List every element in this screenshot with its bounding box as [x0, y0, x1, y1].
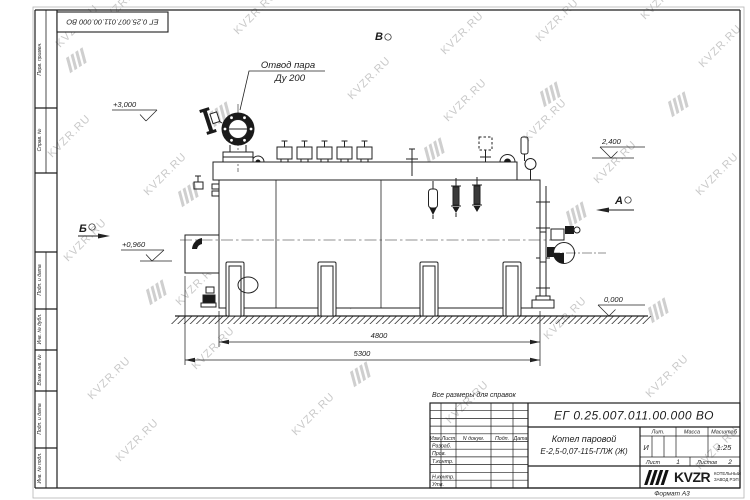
steam-outlet-callout: Отвод пара Ду 200: [240, 60, 325, 110]
view-label: А: [614, 195, 623, 207]
row-label-utv: Утв.: [432, 482, 444, 488]
callout-line2: Ду 200: [274, 73, 306, 84]
watermark-text: KVZR.RU: [644, 353, 692, 401]
view-rotation-icon: [625, 197, 631, 203]
view-marker-v: В: [375, 31, 391, 43]
product-name-line2: Е-2,5-0,07-115-ГЛЖ (Ж): [540, 447, 628, 456]
view-label: Б: [79, 223, 87, 235]
view-label: В: [375, 31, 383, 43]
company-logo-text: KVZR: [674, 469, 711, 485]
product-name-line1: Котел паровой: [552, 434, 617, 444]
frame-cell-label: Инв. № подл.: [37, 452, 43, 483]
view-arrow-icon: [596, 208, 609, 213]
watermark-text: KVZR.RU: [439, 10, 487, 58]
sheets-label: Листов: [696, 460, 717, 466]
row-label-nkontr: Н.контр.: [432, 474, 454, 480]
safety-dome: [252, 155, 515, 163]
callout-line1: Отвод пара: [261, 60, 315, 71]
elevation-label: 0,000: [604, 295, 624, 304]
elevation-left-mid: +0,960: [121, 240, 172, 261]
frame-cell-label: Взам. инв. №: [37, 354, 43, 386]
frame-cell-label: Подп. и дата: [37, 403, 43, 435]
format-note: Формат А3: [654, 491, 690, 498]
row-label-prov: Пров.: [432, 451, 446, 457]
title-block: ЕГ 0.25.007.011.00.000 ВО Котел паровой …: [430, 403, 741, 488]
watermark-text: KVZR.RU: [442, 77, 490, 125]
sheets-value: 2: [727, 459, 732, 466]
elevation-label: +0,960: [122, 240, 146, 249]
pressure-gauge: [521, 137, 536, 180]
company-name-line2: ЗАВОД РЭП: [714, 477, 739, 482]
drawing-canvas: KVZR.RU KVZR.RU KVZR.RU KVZR.RU KVZR.RU …: [0, 0, 750, 500]
watermark-text: KVZR.RU: [694, 151, 742, 199]
watermark-text: KVZR.RU: [142, 151, 190, 199]
sheet-value: 1: [676, 459, 680, 466]
sheet-label: Лист: [645, 460, 661, 466]
ground-line: [175, 316, 648, 320]
col-header-ndoc: N докум.: [463, 436, 484, 442]
watermark-text: KVZR.RU: [86, 355, 134, 403]
reference-note: Все размеры для справок: [432, 391, 517, 399]
dimension-4800: 4800: [219, 311, 540, 366]
lit-label: Лит.: [651, 430, 665, 436]
watermark-text: KVZR.RU: [232, 0, 280, 37]
elevation-valve-top: +3,000: [112, 100, 157, 121]
watermark-text: KVZR.RU: [697, 23, 745, 71]
watermark-text: KVZR.RU: [290, 391, 338, 439]
watermark-text: KVZR.RU: [46, 113, 94, 161]
dimension-label: 5300: [354, 349, 372, 358]
valve-handwheel: [199, 105, 222, 135]
view-rotation-icon: [385, 34, 391, 40]
frame-cell-label: Справ. №: [37, 128, 43, 151]
col-header-izm: Изм.: [430, 436, 441, 442]
company-logo-icon: [644, 470, 669, 485]
watermark-text: KVZR.RU: [444, 379, 492, 427]
title-block-right-labels: Лит. Масса Масштаб И 1:25 Лист 1 Листов …: [643, 430, 737, 466]
top-stamp-doc-number: ЕГ 0.25.007.011.00.000 ВО: [66, 18, 158, 27]
company-name-line1: КОТЕЛЬНЫЙ: [714, 471, 741, 476]
watermark-text: KVZR.RU: [346, 55, 394, 103]
elevation-ground: 0,000: [598, 295, 645, 316]
lit-value: И: [643, 443, 649, 452]
mass-label: Масса: [684, 430, 700, 436]
doc-number: ЕГ 0.25.007.011.00.000 ВО: [554, 409, 714, 423]
company-logo: KVZR КОТЕЛЬНЫЙ ЗАВОД РЭП: [644, 469, 741, 485]
frame-cell-label: Инв. № дубл.: [37, 314, 43, 345]
scale-label: Масштаб: [711, 430, 738, 436]
drawing-sheet: KVZR.RU KVZR.RU KVZR.RU KVZR.RU KVZR.RU …: [0, 0, 750, 500]
frame-cell-label: Перв. примен.: [37, 42, 43, 75]
watermark-text: KVZR.RU: [190, 325, 238, 373]
view-marker-a: А: [596, 195, 634, 213]
watermark-text: KVZR.RU: [114, 417, 162, 465]
elevation-label: 2,400: [601, 137, 622, 146]
scale-value: 1:25: [717, 443, 732, 452]
frame-cell-label: Подп. и дата: [37, 264, 43, 296]
row-label-razrab: Разраб.: [432, 444, 451, 450]
col-header-data: Дата: [513, 436, 528, 442]
col-header-podp: Подп.: [495, 436, 509, 442]
watermark-text: KVZR.RU: [639, 0, 687, 22]
top-stamp: ЕГ 0.25.007.011.00.000 ВО: [57, 12, 168, 32]
hatch-covers: [277, 141, 372, 162]
col-header-list: Лист: [441, 436, 456, 442]
row-label-tkontr: Т.контр.: [432, 459, 453, 465]
dimension-label: 4800: [371, 331, 389, 340]
boiler-shell: [213, 162, 540, 308]
view-arrow-icon: [98, 234, 110, 239]
elevation-label: +3,000: [113, 100, 137, 109]
